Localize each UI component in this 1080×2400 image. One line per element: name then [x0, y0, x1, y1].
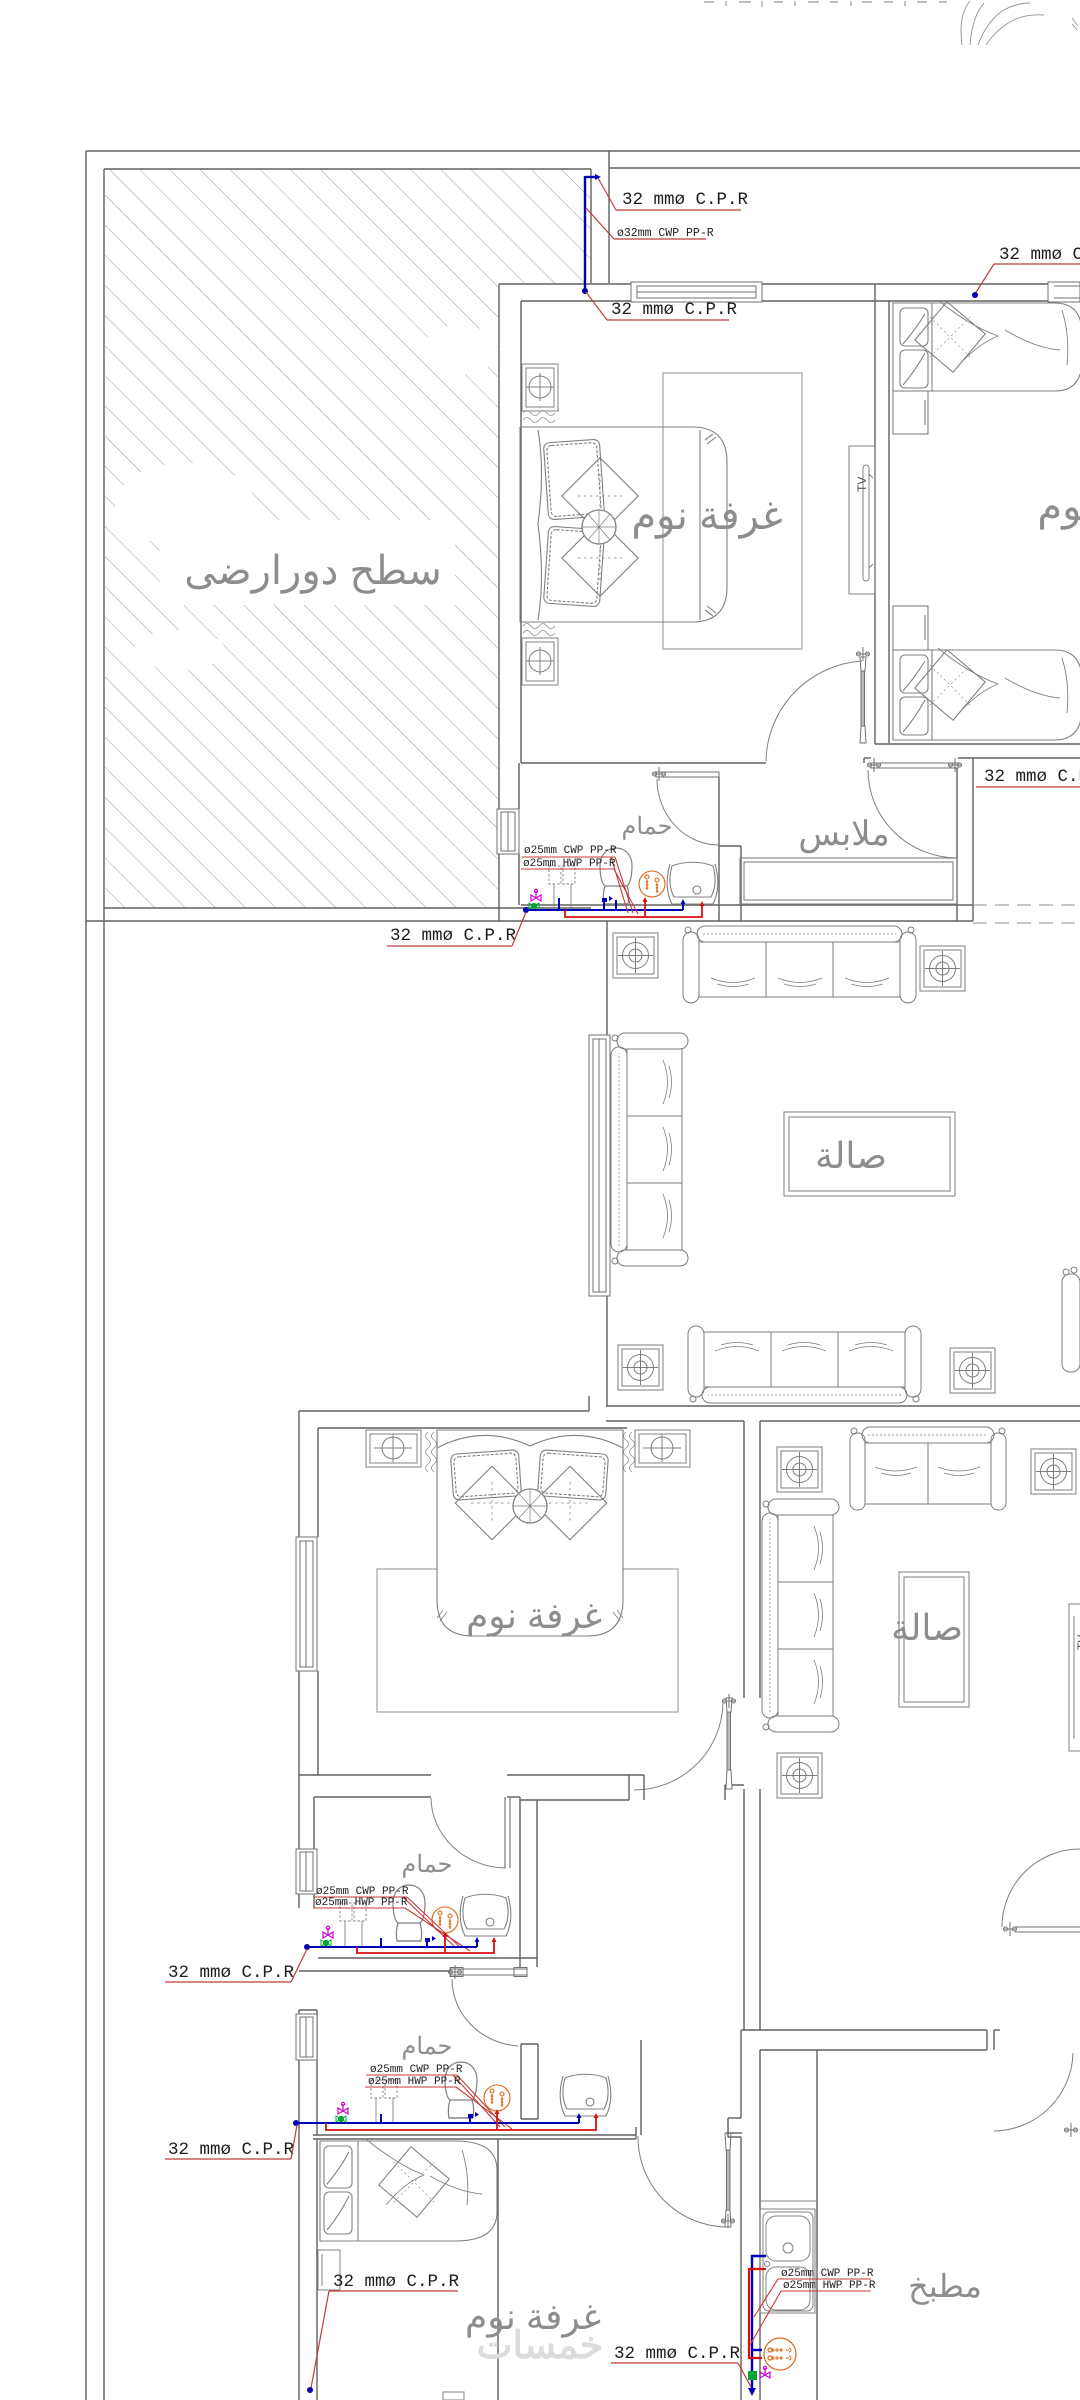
- svg-text:سطح دورارضى: سطح دورارضى: [184, 549, 441, 594]
- svg-text:غرفة نوم: غرفة نوم: [466, 1595, 602, 1637]
- svg-text:حمام: حمام: [622, 813, 673, 840]
- svg-text:32 mmø C.P.R: 32 mmø C.P.R: [611, 300, 738, 320]
- svg-text:صالة: صالة: [815, 1135, 887, 1176]
- svg-text:ø25mm HWP PP-R: ø25mm HWP PP-R: [368, 2076, 461, 2088]
- svg-text:32 mmø C.P: 32 mmø C.P: [984, 767, 1080, 787]
- svg-text:32 mmø C: 32 mmø C: [999, 245, 1080, 265]
- svg-text:حمام: حمام: [402, 1851, 453, 1878]
- svg-text:ø32mm CWP PP-R: ø32mm CWP PP-R: [617, 227, 714, 240]
- svg-text:ملابس: ملابس: [798, 815, 889, 854]
- svg-text:ø25mm CWP PP-R: ø25mm CWP PP-R: [524, 845, 617, 857]
- svg-text:ø25mm HWP PP-R: ø25mm HWP PP-R: [315, 1897, 408, 1909]
- svg-text:حمام: حمام: [402, 2033, 453, 2060]
- svg-text:ø25mm CWP PP-R: ø25mm CWP PP-R: [781, 2268, 874, 2280]
- svg-text:خمسات: خمسات: [477, 2325, 604, 2367]
- svg-text:32 mmø C.P.R: 32 mmø C.P.R: [168, 1963, 295, 1983]
- svg-text:غرفة نوم: غرفة نوم: [631, 494, 782, 539]
- svg-text:32 mmø C.P.R: 32 mmø C.P.R: [390, 926, 517, 946]
- svg-text:مطبخ: مطبخ: [908, 2268, 982, 2305]
- svg-text:32 mmø C.P.R: 32 mmø C.P.R: [614, 2344, 741, 2364]
- svg-text:32 mmø C.P.R: 32 mmø C.P.R: [333, 2272, 460, 2292]
- svg-text:TV: TV: [1075, 1635, 1080, 1650]
- svg-text:صالة: صالة: [891, 1607, 963, 1648]
- svg-text:ø25mm HWP PP-R: ø25mm HWP PP-R: [523, 858, 616, 870]
- svg-text:32 mmø C.P.R: 32 mmø C.P.R: [168, 2140, 295, 2160]
- svg-text:TV: TV: [855, 477, 869, 492]
- svg-text:ø25mm HWP PP-R: ø25mm HWP PP-R: [783, 2280, 876, 2292]
- svg-text:غرفة نوم: غرفة نوم: [1037, 485, 1080, 530]
- svg-text:32 mmø C.P.R: 32 mmø C.P.R: [622, 190, 749, 210]
- svg-text:ø25mm CWP PP-R: ø25mm CWP PP-R: [370, 2064, 463, 2076]
